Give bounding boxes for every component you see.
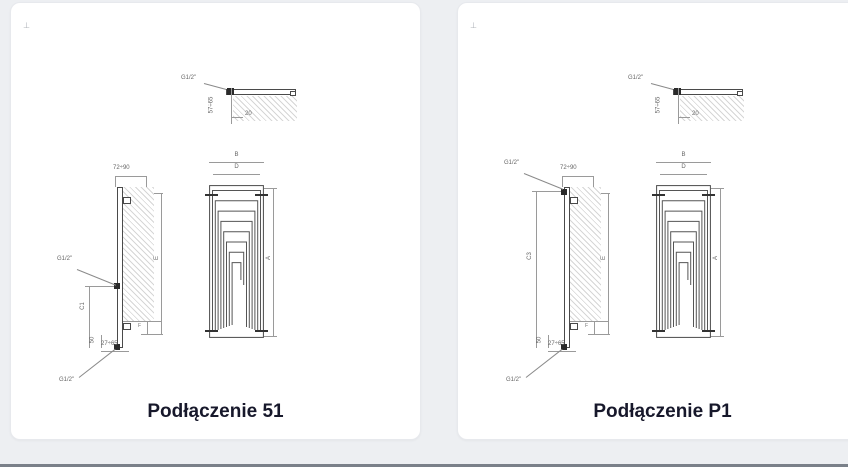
height-dimension: A: [266, 256, 272, 260]
width-dimension: B: [656, 152, 711, 158]
dimension-line: [147, 321, 148, 335]
height-dimension: A: [713, 256, 719, 260]
dimension-line: [536, 191, 537, 348]
radiator-top-section: [226, 89, 296, 95]
dimension-line: [161, 193, 162, 335]
extension-line: [141, 334, 163, 335]
radiator-meander-outline: [209, 185, 264, 338]
height-dimension: E: [601, 256, 607, 260]
leader-line: [524, 173, 563, 190]
extension-line: [85, 286, 117, 287]
leader-line: [77, 269, 116, 286]
thread-label-upper: G1/2": [504, 160, 519, 166]
connection-mark: [205, 330, 218, 332]
wall-hatch: [570, 187, 601, 321]
spacing-dimension: C3: [527, 252, 533, 260]
card-caption: Podłączenie 51: [11, 401, 420, 423]
extension-line: [711, 336, 724, 337]
thread-label-upper: G1/2": [57, 256, 72, 262]
dimension-line: [660, 174, 707, 175]
upper-connection: [561, 189, 567, 195]
drawing-card-51[interactable]: ⊥ G1/2" 57÷65 20 72÷90 E F C1 G1/2": [10, 2, 421, 440]
wall-bottom-line: [570, 321, 608, 322]
thread-label-lower: G1/2": [59, 377, 74, 383]
mount-bracket-top: [570, 197, 578, 204]
projection-symbol-icon: ⊥: [470, 21, 477, 30]
extension-line: [154, 193, 163, 194]
dimension-line: [209, 162, 264, 163]
dimension-line: [656, 162, 711, 163]
connection-mark: [205, 194, 218, 196]
extension-line: [532, 191, 564, 192]
card-caption: Podłączenie P1: [458, 401, 848, 423]
thread-label-lower: G1/2": [506, 377, 521, 383]
depth-dimension: 57÷65: [208, 97, 214, 114]
inner-width-dimension: D: [660, 164, 707, 170]
extension-line: [264, 188, 277, 189]
bottom-range-dimension: 27÷65: [101, 341, 118, 347]
connection-mark: [255, 330, 268, 332]
mount-bracket-bottom: [570, 323, 578, 330]
step-dimension: F: [138, 323, 141, 329]
thread-label: G1/2": [628, 75, 643, 81]
wall-bottom-line: [123, 321, 161, 322]
width-dimension: B: [209, 152, 264, 158]
dimension-line: [562, 176, 594, 177]
connection-mark: [255, 194, 268, 196]
inner-width-dimension: D: [213, 164, 260, 170]
drawing-card-p1[interactable]: ⊥ G1/2" 57÷65 20 72÷90 E F C3 G1/2": [457, 2, 848, 440]
connection-mark: [702, 330, 715, 332]
dimension-line: [231, 117, 243, 118]
extension-line: [593, 176, 594, 187]
dimension-line: [678, 88, 679, 124]
top-range-dimension: 72÷90: [113, 165, 130, 171]
radiator-top-section: [673, 89, 743, 95]
top-range-dimension: 72÷90: [560, 165, 577, 171]
wall-hatch: [123, 187, 154, 321]
dimension-line: [608, 193, 609, 335]
depth-dimension: 57÷65: [655, 97, 661, 114]
extension-line: [264, 336, 277, 337]
dimension-line: [720, 188, 721, 336]
height-dimension: E: [154, 256, 160, 260]
dimension-line: [678, 117, 690, 118]
dimension-line: [548, 351, 576, 352]
leader-line: [526, 349, 563, 378]
dimension-line: [273, 188, 274, 336]
spacing-dimension: C1: [80, 302, 86, 310]
radiator-meander-outline: [656, 185, 711, 338]
extension-line: [601, 193, 610, 194]
mount-bracket-top: [123, 197, 131, 204]
connection-mark: [652, 330, 665, 332]
extension-line: [588, 334, 610, 335]
connection-mark: [702, 194, 715, 196]
offset-small-dimension: 50: [536, 337, 542, 344]
connection-mark: [652, 194, 665, 196]
extension-line: [146, 176, 147, 187]
extension-line: [562, 176, 563, 187]
extension-line: [115, 176, 116, 187]
bottom-range-dimension: 27÷65: [548, 341, 565, 347]
thread-label: G1/2": [181, 75, 196, 81]
dimension-line: [594, 321, 595, 335]
dimension-line: [101, 351, 129, 352]
offset-dimension: 20: [692, 111, 699, 117]
mount-bracket-bottom: [123, 323, 131, 330]
projection-symbol-icon: ⊥: [23, 21, 30, 30]
step-dimension: F: [585, 323, 588, 329]
offset-dimension: 20: [245, 111, 252, 117]
leader-line: [79, 349, 116, 378]
extension-line: [711, 188, 724, 189]
offset-small-dimension: 50: [89, 337, 95, 344]
dimension-line: [115, 176, 147, 177]
dimension-line: [231, 88, 232, 124]
dimension-line: [213, 174, 260, 175]
